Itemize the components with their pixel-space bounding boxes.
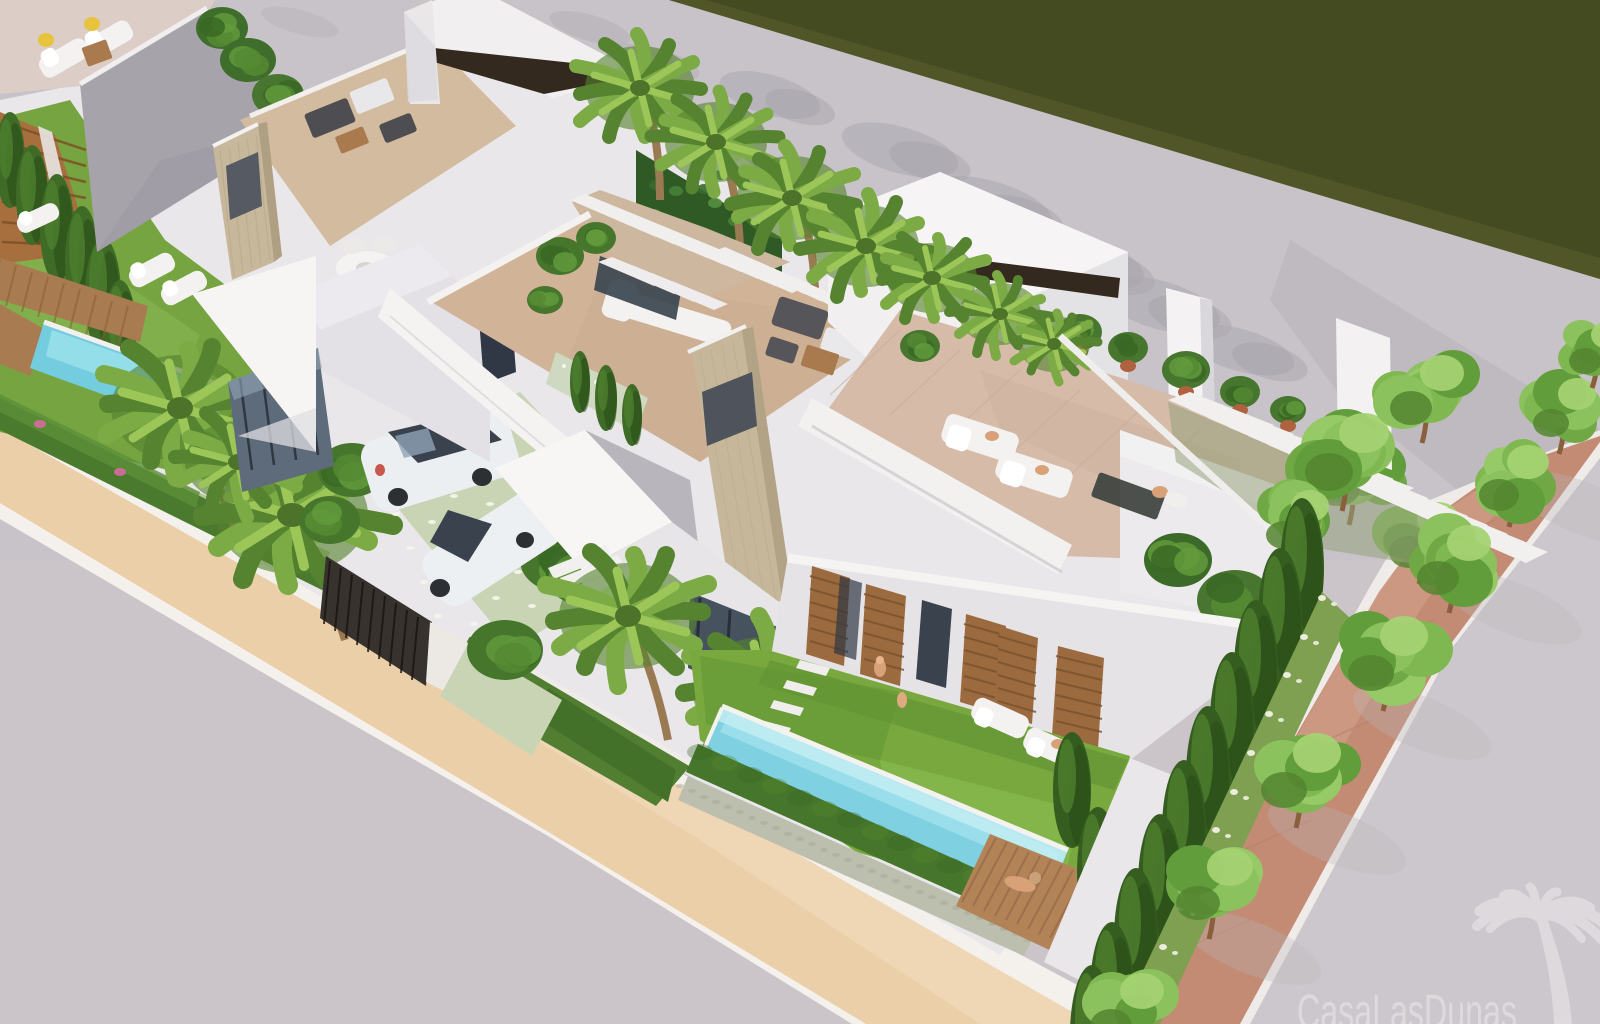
svg-text:CasaLasDunas: CasaLasDunas bbox=[1297, 986, 1517, 1024]
